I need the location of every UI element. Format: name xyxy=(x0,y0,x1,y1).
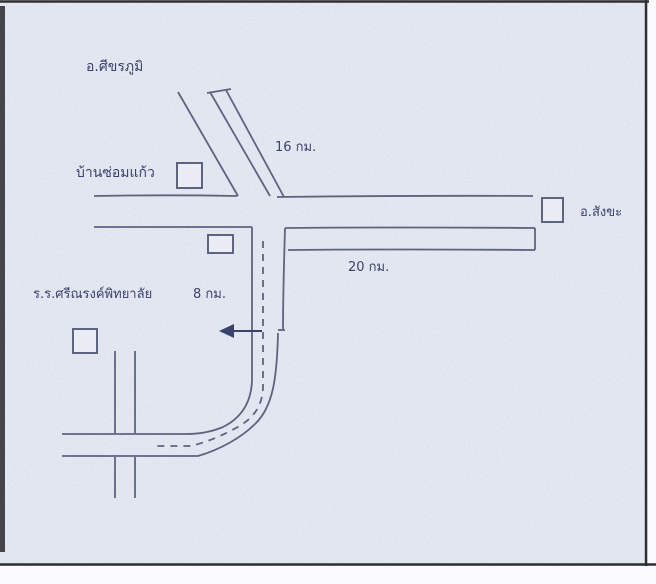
label-village: บ้านซ่อมแก้ว xyxy=(76,165,155,181)
label-school: ร.ร.ศรีณรงค์พิทยาลัย xyxy=(33,286,152,302)
label-district-top: อ.ศีขรภูมิ xyxy=(86,59,143,75)
sangkha-marker-icon xyxy=(542,198,563,222)
main-road-bottom-line-right xyxy=(285,228,535,229)
main-road-top-line-left xyxy=(94,195,237,196)
label-distance-16km: 16 กม. xyxy=(275,140,316,155)
label-distance-20km: 20 กม. xyxy=(348,260,389,275)
school-marker-icon xyxy=(73,329,97,353)
scan-noise-texture xyxy=(0,0,648,566)
village-marker-icon xyxy=(177,163,202,188)
junction-marker-icon xyxy=(208,235,233,253)
scanned-map-page: อ.ศีขรภูมิ 16 กม. บ้านซ่อมแก้ว อ.สังขะ 2… xyxy=(0,0,656,584)
distance-20km-lower-line xyxy=(288,250,535,251)
frame-border-left xyxy=(0,6,5,552)
route-map: อ.ศีขรภูมิ 16 กม. บ้านซ่อมแก้ว อ.สังขะ 2… xyxy=(0,0,656,584)
label-district-right: อ.สังขะ xyxy=(580,205,622,220)
label-distance-8km: 8 กม. xyxy=(193,287,226,302)
